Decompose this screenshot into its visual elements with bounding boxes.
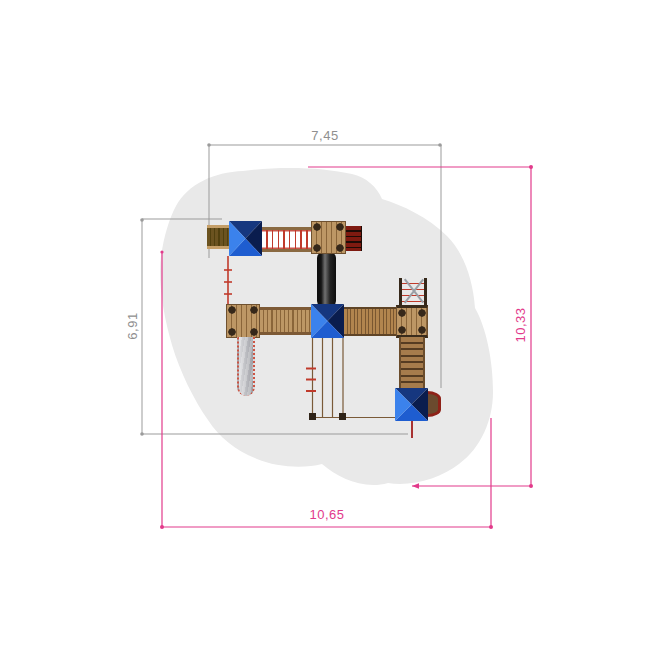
monkey-bars-bridge <box>262 227 312 252</box>
dimension-label-left: 6,91 <box>125 294 141 358</box>
crawl-tube <box>317 251 336 308</box>
tube-slide-exit <box>427 391 441 417</box>
slatted-walkway <box>344 307 398 336</box>
plank-bridge <box>260 307 311 335</box>
dimension-label-top: 7,45 <box>293 128 357 144</box>
stairs <box>399 337 425 389</box>
dimension-label-bottom: 10,65 <box>295 507 359 523</box>
entry-deck-top-left <box>207 225 231 249</box>
climbing-wall-slats <box>346 226 362 251</box>
tower-roof-bottom <box>395 388 428 421</box>
tower-roof-middle <box>311 304 344 338</box>
platform-middle-left <box>226 304 260 338</box>
climbing-rail-frame <box>399 278 427 306</box>
platform-top-middle <box>311 221 346 254</box>
platform-right <box>396 305 428 338</box>
dimension-label-right: 10,33 <box>513 293 529 357</box>
playground-plan-drawing: 7,45 6,91 10,33 10,65 <box>0 0 660 660</box>
tower-roof-top-left <box>229 221 262 256</box>
slide <box>237 337 255 396</box>
